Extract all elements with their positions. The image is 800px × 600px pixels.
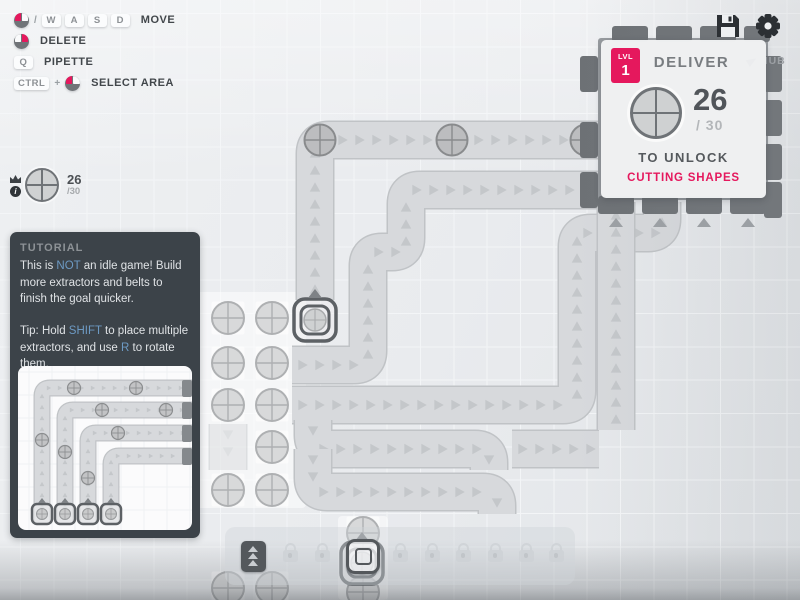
keybind-row: CTRL+SELECT AREA bbox=[14, 75, 175, 91]
goal-unlock-text: TO UNLOCK bbox=[601, 150, 766, 165]
pinned-shape bbox=[23, 166, 61, 204]
toolbar-slot-locked[interactable] bbox=[383, 534, 417, 578]
lock-icon bbox=[393, 550, 408, 562]
key-cap: W bbox=[42, 14, 61, 27]
key-cap: Q bbox=[14, 56, 33, 69]
gear-icon[interactable] bbox=[754, 12, 782, 40]
mouse-left-icon bbox=[14, 13, 29, 28]
lock-icon bbox=[519, 550, 534, 562]
key-separator: + bbox=[54, 78, 60, 89]
toolbar-slot-locked[interactable] bbox=[509, 534, 543, 578]
tutorial-panel: TUTORIAL This is NOT an idle game! Build… bbox=[10, 232, 200, 538]
save-icon[interactable] bbox=[714, 12, 742, 40]
game-screen: /WASDMOVEDELETEQPIPETTECTRL+SELECT AREA … bbox=[0, 0, 800, 600]
keybind-label: MOVE bbox=[141, 14, 175, 26]
pinned-amount: 26 bbox=[67, 173, 81, 187]
key-cap: S bbox=[88, 14, 107, 27]
key-cap: CTRL bbox=[14, 77, 49, 90]
keybind-label: SELECT AREA bbox=[91, 77, 174, 89]
mouse-left-icon bbox=[65, 76, 80, 91]
toolbar-slot-extractor[interactable] bbox=[346, 534, 380, 578]
building-toolbar bbox=[225, 527, 575, 585]
tutorial-paragraph: This is NOT an idle game! Build more ext… bbox=[20, 258, 192, 308]
goal-reward: CUTTING SHAPES bbox=[601, 172, 766, 184]
tutorial-image bbox=[18, 366, 192, 530]
toolbar-slot-belt[interactable] bbox=[236, 534, 270, 578]
goal-amount: 26 bbox=[693, 82, 727, 118]
key-separator: / bbox=[34, 15, 37, 26]
pinned-total: /30 bbox=[67, 187, 81, 197]
keybind-label: PIPETTE bbox=[44, 56, 93, 68]
tutorial-title: TUTORIAL bbox=[20, 242, 192, 254]
lock-icon bbox=[456, 550, 471, 562]
toolbar-slot-locked[interactable] bbox=[539, 534, 573, 578]
toolbar-slot-locked[interactable] bbox=[415, 534, 449, 578]
tutorial-text: This is NOT an idle game! Build more ext… bbox=[18, 258, 192, 373]
lock-icon bbox=[283, 550, 298, 562]
pinned-goal: i 26 /30 bbox=[10, 166, 81, 204]
belt-tool-icon bbox=[241, 541, 266, 572]
lock-icon bbox=[549, 550, 564, 562]
toolbar-slot-locked[interactable] bbox=[478, 534, 512, 578]
keybind-row: DELETE bbox=[14, 33, 175, 49]
goal-total: / 30 bbox=[696, 117, 723, 133]
extractor-tool-icon bbox=[346, 539, 380, 574]
info-icon: i bbox=[10, 186, 21, 197]
toolbar-slot-locked[interactable] bbox=[273, 534, 307, 578]
goal-title: DELIVER bbox=[641, 54, 742, 71]
level-badge: LVL 1 bbox=[611, 48, 640, 83]
keybind-hints: /WASDMOVEDELETEQPIPETTECTRL+SELECT AREA bbox=[14, 12, 175, 96]
goal-panel[interactable]: LVL 1 DELIVER 26 / 30 TO UNLOCK CUTTING … bbox=[601, 40, 766, 198]
goal-shape bbox=[627, 84, 685, 142]
keybind-label: DELETE bbox=[40, 35, 86, 47]
mouse-right-icon bbox=[14, 34, 29, 49]
toolbar-slot-locked[interactable] bbox=[305, 534, 339, 578]
crown-icon bbox=[10, 174, 21, 184]
toolbar-slot-locked[interactable] bbox=[446, 534, 480, 578]
lock-icon bbox=[488, 550, 503, 562]
keybind-row: QPIPETTE bbox=[14, 54, 175, 70]
lock-icon bbox=[425, 550, 440, 562]
key-cap: D bbox=[111, 14, 130, 27]
keybind-row: /WASDMOVE bbox=[14, 12, 175, 28]
lock-icon bbox=[315, 550, 330, 562]
key-cap: A bbox=[65, 14, 84, 27]
